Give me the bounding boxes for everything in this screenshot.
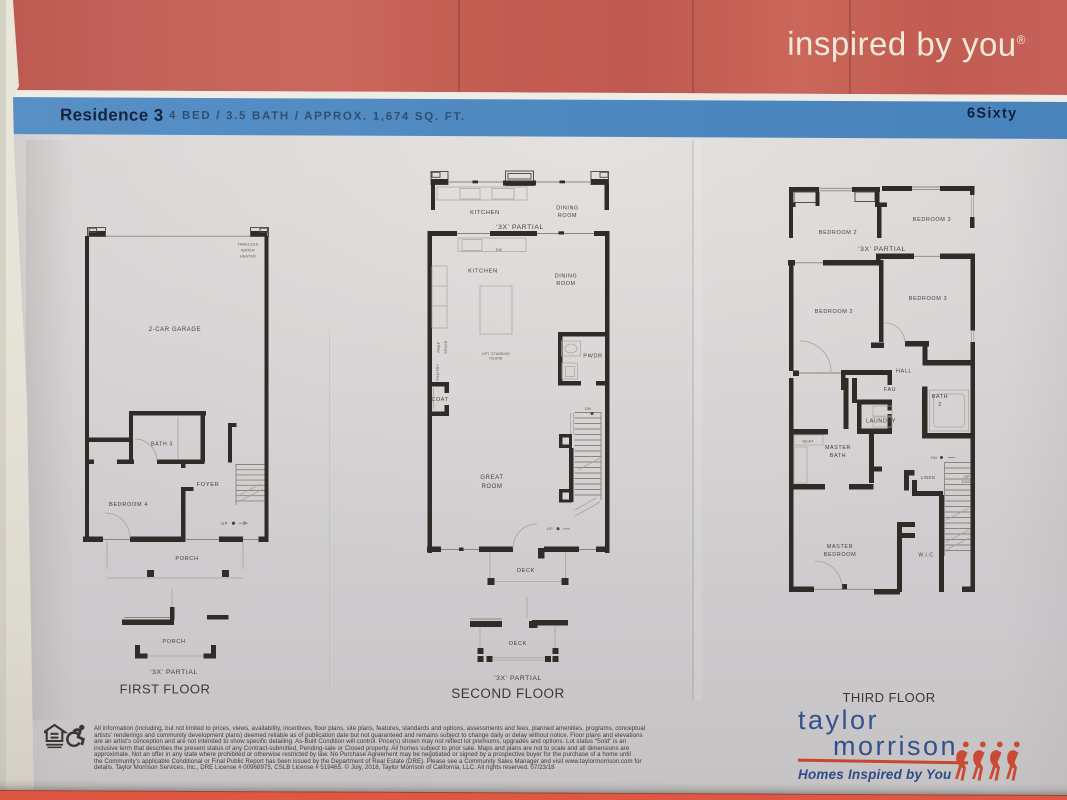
svg-text:DINING: DINING xyxy=(555,274,577,280)
svg-text:COAT: COAT xyxy=(432,397,449,403)
svg-text:‘3X’ PARTIAL: ‘3X’ PARTIAL xyxy=(858,246,906,253)
svg-text:BEDROOM 2: BEDROOM 2 xyxy=(815,309,853,315)
svg-text:LINEN: LINEN xyxy=(921,475,935,480)
svg-text:HALL: HALL xyxy=(896,369,912,375)
svg-text:BATH: BATH xyxy=(932,394,948,400)
svg-text:ROOM: ROOM xyxy=(481,484,502,490)
svg-text:2-CAR GARAGE: 2-CAR GARAGE xyxy=(149,327,202,333)
svg-text:OPT: OPT xyxy=(964,475,973,479)
svg-text:BEDROOM 3: BEDROOM 3 xyxy=(909,296,947,302)
svg-text:DN: DN xyxy=(585,407,591,411)
svg-text:MASTER: MASTER xyxy=(827,544,854,550)
svg-text:DINING: DINING xyxy=(556,206,578,212)
svg-text:OPT. STANDING: OPT. STANDING xyxy=(482,352,510,356)
svg-text:ROOM: ROOM xyxy=(556,281,575,287)
svg-text:FIRST FLOOR: FIRST FLOOR xyxy=(120,682,211,697)
svg-text:TANKLESS: TANKLESS xyxy=(238,243,259,247)
svg-text:BATH 3: BATH 3 xyxy=(151,442,173,448)
svg-text:DN: DN xyxy=(931,456,937,460)
svg-text:PREP: PREP xyxy=(437,341,441,352)
svg-text:UP: UP xyxy=(547,526,553,531)
svg-text:KITCHEN: KITCHEN xyxy=(468,269,498,275)
svg-text:2: 2 xyxy=(938,402,942,408)
svg-text:PORCH: PORCH xyxy=(162,639,185,645)
svg-text:SECOND FLOOR: SECOND FLOOR xyxy=(451,686,564,701)
svg-text:MASTER: MASTER xyxy=(825,445,851,451)
svg-text:UP: UP xyxy=(221,521,227,526)
svg-text:HEATER: HEATER xyxy=(240,255,256,259)
svg-text:BATH: BATH xyxy=(830,453,846,459)
svg-text:‘3X’ PARTIAL: ‘3X’ PARTIAL xyxy=(496,224,544,231)
svg-text:FOYER: FOYER xyxy=(197,482,220,488)
svg-text:DOOR: DOOR xyxy=(962,480,974,484)
svg-text:PWDR: PWDR xyxy=(583,354,603,360)
svg-text:‘3X’ PARTIAL: ‘3X’ PARTIAL xyxy=(150,669,198,676)
svg-text:PANTRY: PANTRY xyxy=(436,363,440,380)
svg-text:WATER: WATER xyxy=(241,249,255,253)
svg-text:DECK: DECK xyxy=(509,641,527,647)
svg-text:‘3X’ PARTIAL: ‘3X’ PARTIAL xyxy=(494,675,542,682)
svg-text:KITCHEN: KITCHEN xyxy=(470,210,500,216)
svg-text:SPACE: SPACE xyxy=(444,340,448,354)
svg-text:GREAT: GREAT xyxy=(480,475,503,481)
svg-text:ROOM: ROOM xyxy=(558,213,577,219)
svg-text:BEDROOM 4: BEDROOM 4 xyxy=(109,502,148,508)
svg-text:DECK: DECK xyxy=(517,568,535,574)
svg-text:ISLAND: ISLAND xyxy=(489,357,503,361)
svg-text:BEDROOM: BEDROOM xyxy=(824,552,857,558)
svg-text:DW: DW xyxy=(496,248,503,252)
svg-text:SEAT: SEAT xyxy=(802,439,814,444)
svg-text:BEDROOM 3: BEDROOM 3 xyxy=(913,217,951,223)
svg-text:PORCH: PORCH xyxy=(175,556,198,562)
svg-text:LAUNDRY: LAUNDRY xyxy=(866,419,896,425)
svg-text:W.I.C: W.I.C xyxy=(918,553,933,559)
svg-text:FAU: FAU xyxy=(884,387,896,393)
svg-text:BEDROOM 2: BEDROOM 2 xyxy=(819,230,857,236)
